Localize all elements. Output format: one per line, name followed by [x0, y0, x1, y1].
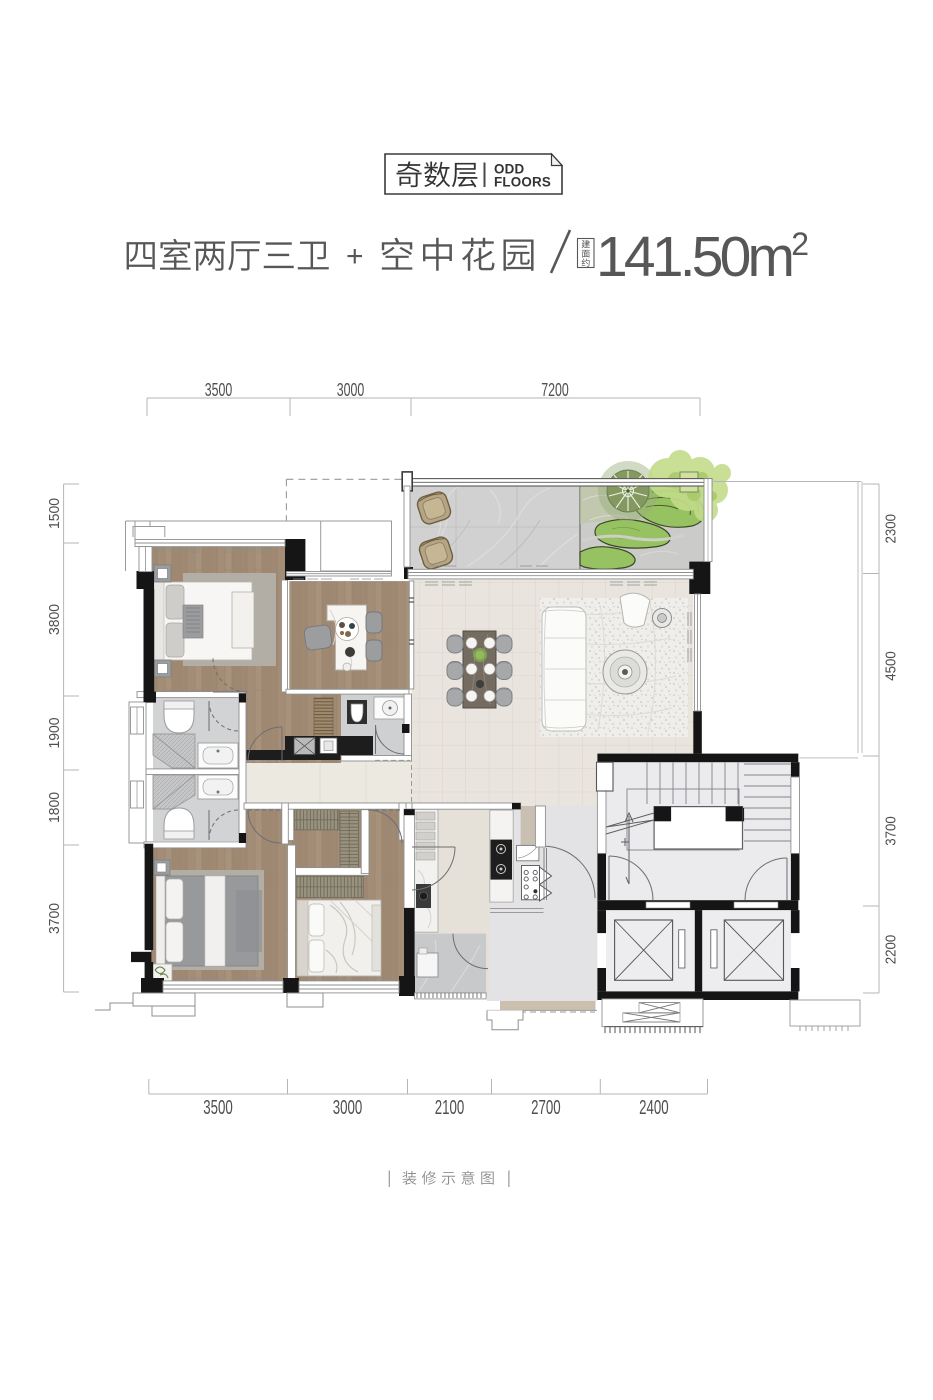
- svg-text:2300: 2300: [883, 514, 900, 544]
- svg-text:3800: 3800: [46, 604, 63, 635]
- svg-text:4500: 4500: [883, 651, 900, 681]
- svg-text:3000: 3000: [337, 380, 365, 400]
- svg-text:2700: 2700: [531, 1097, 561, 1119]
- svg-text:1900: 1900: [46, 718, 63, 749]
- svg-text:3700: 3700: [883, 816, 900, 846]
- svg-text:1800: 1800: [46, 792, 63, 823]
- svg-text:3700: 3700: [46, 903, 63, 934]
- svg-text:+: +: [346, 240, 364, 273]
- svg-text:3000: 3000: [333, 1097, 363, 1119]
- svg-text:1500: 1500: [46, 498, 63, 529]
- svg-text:7200: 7200: [541, 380, 569, 400]
- svg-text:2200: 2200: [883, 935, 900, 965]
- svg-text:141.50m2: 141.50m2: [596, 225, 808, 289]
- svg-text:2100: 2100: [435, 1097, 465, 1119]
- svg-text:FLOORS: FLOORS: [494, 175, 551, 190]
- svg-text:3500: 3500: [205, 380, 233, 400]
- svg-text:3500: 3500: [203, 1097, 233, 1119]
- svg-text:2400: 2400: [639, 1097, 669, 1119]
